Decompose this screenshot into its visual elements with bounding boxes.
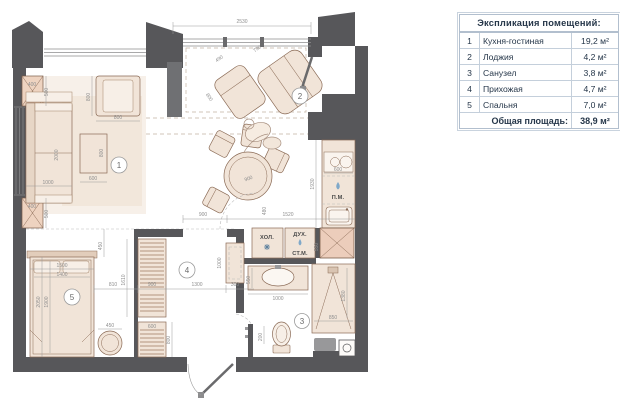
loggia-window [183, 37, 311, 47]
snowflake-icon [264, 244, 270, 250]
lounge-chair-large [254, 47, 325, 118]
vent-shaft [320, 228, 354, 258]
dim-bed-gap: 450 [98, 242, 104, 251]
room-2-number: 2 [298, 92, 303, 101]
fridge-cabinet: ХОЛ. [252, 228, 283, 258]
lounge-chair-small [212, 63, 268, 121]
legend-row-area: 4,7 м² [572, 81, 619, 97]
armchair [96, 76, 140, 116]
dim-basin-width: 1000 [272, 296, 283, 302]
legend-row: 1 Кухня-гостиная 19,2 м² [460, 32, 618, 49]
dim-shaft-width: 550 [314, 243, 320, 252]
left-side-window [14, 106, 25, 196]
legend-row: 2 Лоджия 4,2 м² [460, 49, 618, 65]
dim-bed-l2: 1900 [44, 296, 50, 307]
dim-coffee-table-width: 600 [89, 176, 98, 182]
legend-row: 5 Спальня 7,0 м² [460, 97, 618, 113]
floor-plan: П.М. ХОЛ. ДУХ. СТ.М. [0, 0, 455, 408]
bottom-wall-left [13, 357, 187, 372]
dim-bench-length: 1000 [217, 257, 223, 268]
dim-bed-w2: 1400 [56, 272, 67, 278]
dim-bench-depth: 300 [231, 282, 240, 288]
washing-machine [339, 340, 355, 356]
legend-row: 3 Санузел 3,8 м² [460, 65, 618, 81]
dim-sofa-width: 1000 [42, 180, 53, 186]
legend-row-number: 5 [460, 97, 480, 113]
legend-row-name: Санузел [480, 65, 572, 81]
room-marker-1: 1 [111, 157, 127, 173]
shower [312, 264, 355, 333]
dim-chair-depth: 800 [204, 92, 214, 102]
legend-total-label: Общая площадь: [460, 113, 572, 129]
hall-wall-stub-left [134, 229, 183, 237]
dishwasher-label: П.М. [332, 195, 345, 201]
legend-row-number: 1 [460, 32, 480, 49]
dim-hall-gap: 1520 [282, 212, 293, 218]
washbasin [248, 265, 308, 290]
bedroom-hall-wall [134, 237, 138, 357]
dim-kitchen-length: 1930 [310, 178, 316, 189]
bottom-wall-middle [236, 357, 313, 372]
dim-pier1-width: 400 [28, 82, 37, 88]
dim-hall-width: 1300 [191, 282, 202, 288]
room-marker-5: 5 [64, 289, 80, 305]
toilet [273, 322, 291, 353]
entrance-door [188, 364, 233, 398]
dim-bed-w1: 1500 [56, 263, 67, 269]
window-pier-block [146, 22, 183, 68]
floor-plan-page: П.М. ХОЛ. ДУХ. СТ.М. [0, 0, 620, 408]
dim-shoe-cabinet: 600 [148, 324, 157, 330]
dim-shower-length: 1380 [341, 290, 347, 301]
dim-top-window: 2530 [236, 19, 247, 25]
dim-hall-opening: 900 [199, 212, 208, 218]
hall-wall-stub-right [227, 229, 244, 237]
oven-washer-cabinet: ДУХ. СТ.М. [285, 228, 315, 258]
legend-table: Экспликация помещений: 1 Кухня-гостиная … [460, 15, 618, 128]
bath-cabinet [314, 338, 336, 351]
hall-wardrobe [138, 239, 166, 317]
floor-plan-drawing: П.М. ХОЛ. ДУХ. СТ.М. [0, 0, 455, 408]
bathroom-north-wall [244, 258, 316, 264]
hall-bench [226, 243, 244, 283]
dim-pier2-height: 500 [44, 210, 50, 219]
chimney-top-left [12, 21, 43, 68]
dim-armchair-width: 800 [114, 115, 123, 121]
loggia-door-jamb [308, 37, 322, 57]
legend-row-area: 19,2 м² [572, 32, 619, 49]
dim-sofa-length: 2000 [54, 149, 60, 160]
dim-armchair-depth: 800 [86, 93, 92, 102]
legend-row-number: 2 [460, 49, 480, 65]
chimney-top-right [318, 12, 355, 46]
legend-title: Экспликация помещений: [460, 15, 618, 32]
legend-total-row: Общая площадь: 38,9 м² [460, 113, 618, 129]
room-4-number: 4 [185, 266, 190, 275]
legend-row-name: Спальня [480, 97, 572, 113]
dim-hall-door: 480 [262, 207, 268, 216]
bathroom-door-swing [236, 314, 251, 324]
washing-machine-label: СТ.М. [292, 251, 308, 257]
dining-chair [202, 186, 231, 214]
dim-counter-width: 600 [334, 167, 343, 173]
dim-wardrobe-height: 1610 [121, 274, 127, 285]
dim-pier2-width: 400 [28, 204, 37, 210]
sofa [26, 103, 72, 203]
kitchen-sink [326, 207, 352, 225]
stool [98, 331, 122, 355]
dim-shower-width: 850 [329, 315, 338, 321]
legend-row-number: 4 [460, 81, 480, 97]
dim-bed-l1: 2050 [36, 296, 42, 307]
living-room-window [44, 49, 146, 56]
dim-toilet-offset: 200 [258, 333, 264, 342]
room-marker-3: 3 [295, 314, 310, 329]
bathroom-door-leaf [248, 324, 253, 357]
legend-row-number: 3 [460, 65, 480, 81]
legend-row-area: 3,8 м² [572, 65, 619, 81]
plant-sketch [243, 119, 281, 152]
dim-coffee-table-depth: 800 [99, 149, 105, 158]
legend-total-value: 38,9 м² [572, 113, 619, 129]
dim-entry-depth: 800 [166, 336, 172, 345]
dim-wardrobe-width: 900 [148, 282, 157, 288]
dim-basin-depth: 550 [246, 276, 252, 285]
room-3-number: 3 [300, 317, 305, 326]
room-legend: Экспликация помещений: 1 Кухня-гостиная … [459, 14, 619, 129]
dim-pier1-height: 500 [44, 88, 50, 97]
legend-row-area: 4,2 м² [572, 49, 619, 65]
legend-row: 4 Прихожая 4,7 м² [460, 81, 618, 97]
oven-label: ДУХ. [293, 232, 307, 238]
room-5-number: 5 [70, 293, 75, 302]
dim-chair-small: 490 [214, 54, 224, 64]
legend-row-name: Лоджия [480, 49, 572, 65]
legend-row-name: Кухня-гостиная [480, 32, 572, 49]
loggia-kitchen-wall [308, 94, 368, 140]
room-marker-2: 2 [292, 88, 308, 104]
room-marker-4: 4 [179, 262, 195, 278]
dim-ward-to-bed: 810 [109, 282, 118, 288]
dim-stool: 450 [106, 323, 115, 329]
fridge-label: ХОЛ. [260, 235, 274, 241]
legend-row-name: Прихожая [480, 81, 572, 97]
living-loggia-wall [167, 62, 182, 117]
room-1-number: 1 [117, 161, 122, 170]
legend-row-area: 7,0 м² [572, 97, 619, 113]
